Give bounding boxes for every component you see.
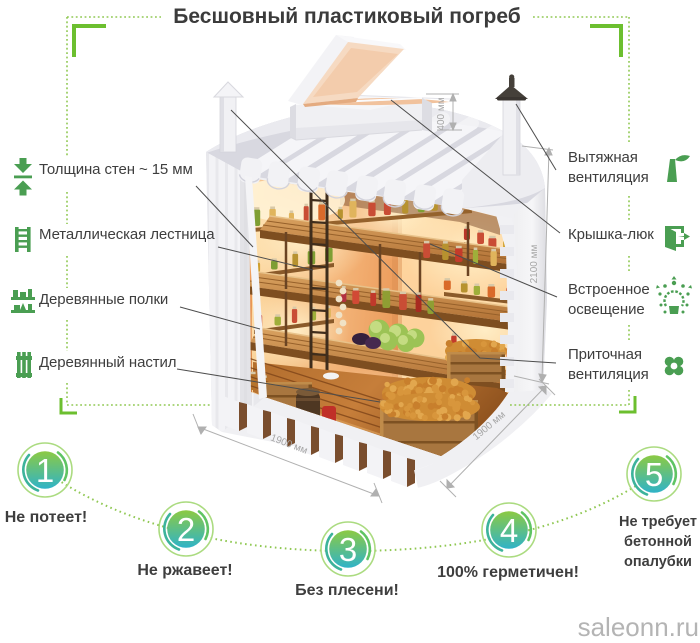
svg-text:3: 3 <box>339 531 357 568</box>
svg-text:1: 1 <box>36 452 54 489</box>
svg-text:2100 мм: 2100 мм <box>529 244 540 283</box>
svg-text:4: 4 <box>500 512 518 549</box>
svg-text:400 мм: 400 мм <box>436 97 447 130</box>
svg-text:5: 5 <box>645 456 663 493</box>
svg-text:2: 2 <box>177 511 195 548</box>
